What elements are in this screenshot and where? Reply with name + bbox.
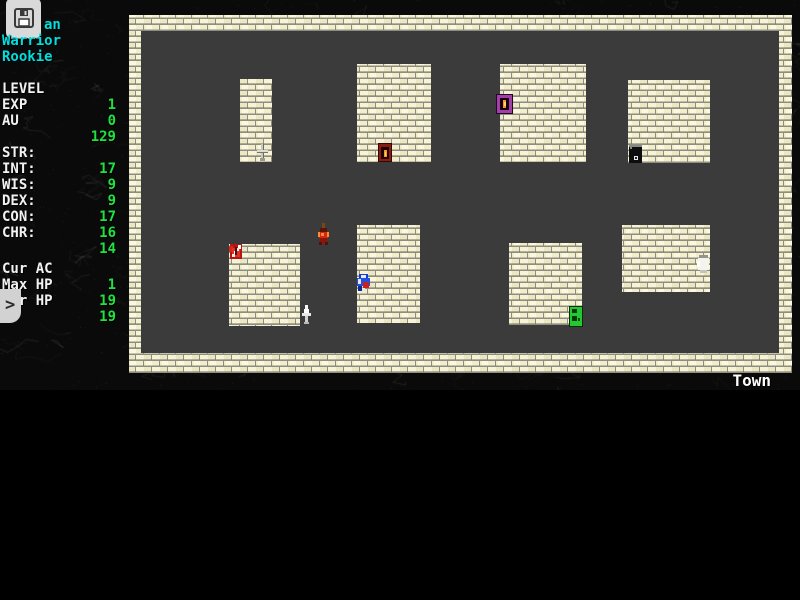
building-2 — [357, 64, 431, 162]
boundary-wall — [779, 15, 792, 373]
character-rank: Rookie — [2, 49, 116, 65]
max-hp-value: 19 — [99, 293, 116, 309]
game-screen: an Warrior Rookie LEVEL 1 EXP 0 AU 129 S… — [0, 0, 800, 390]
sprite-door-red — [378, 143, 392, 162]
sprite-door-black — [629, 145, 642, 163]
character-name: an — [44, 17, 61, 33]
stat-row-exp: EXP 0 — [2, 81, 116, 97]
prompt-button[interactable]: > — [0, 289, 21, 323]
town-label: Town — [732, 371, 771, 390]
gold-label: AU — [2, 113, 19, 129]
exp-value: 0 — [108, 113, 116, 129]
cur-hp-value: 19 — [99, 309, 116, 325]
game-viewport[interactable] — [0, 0, 800, 390]
building-8 — [622, 225, 710, 292]
con-value: 16 — [99, 225, 116, 241]
boundary-wall — [129, 15, 141, 373]
chevron-right-icon: > — [5, 295, 15, 315]
boundary-wall — [129, 353, 792, 373]
stat-row-level: LEVEL 1 — [2, 65, 116, 81]
character-class: Warrior — [2, 33, 116, 49]
sprite-door-green — [569, 306, 583, 327]
stat-row-cur-ac: Cur AC 1 — [2, 245, 116, 261]
sprite-door-purple — [496, 94, 513, 114]
stat-row-max-hp: Max HP 19 — [2, 261, 116, 277]
stat-row-con: CON: 16 — [2, 193, 116, 209]
stat-row-dex: DEX: 17 — [2, 177, 116, 193]
boundary-wall — [129, 15, 792, 31]
sprite-shield-red — [229, 244, 242, 259]
stat-row-wis: WIS: 9 — [2, 161, 116, 177]
stat-row-str: STR: 17 — [2, 129, 116, 145]
stat-row-chr: CHR: 14 — [2, 209, 116, 225]
stat-row-gold: AU 129 — [2, 97, 116, 113]
chr-label: CHR: — [2, 225, 36, 241]
floppy-disk-icon — [12, 6, 36, 30]
building-1 — [240, 79, 272, 162]
stat-row-int: INT: 9 — [2, 145, 116, 161]
